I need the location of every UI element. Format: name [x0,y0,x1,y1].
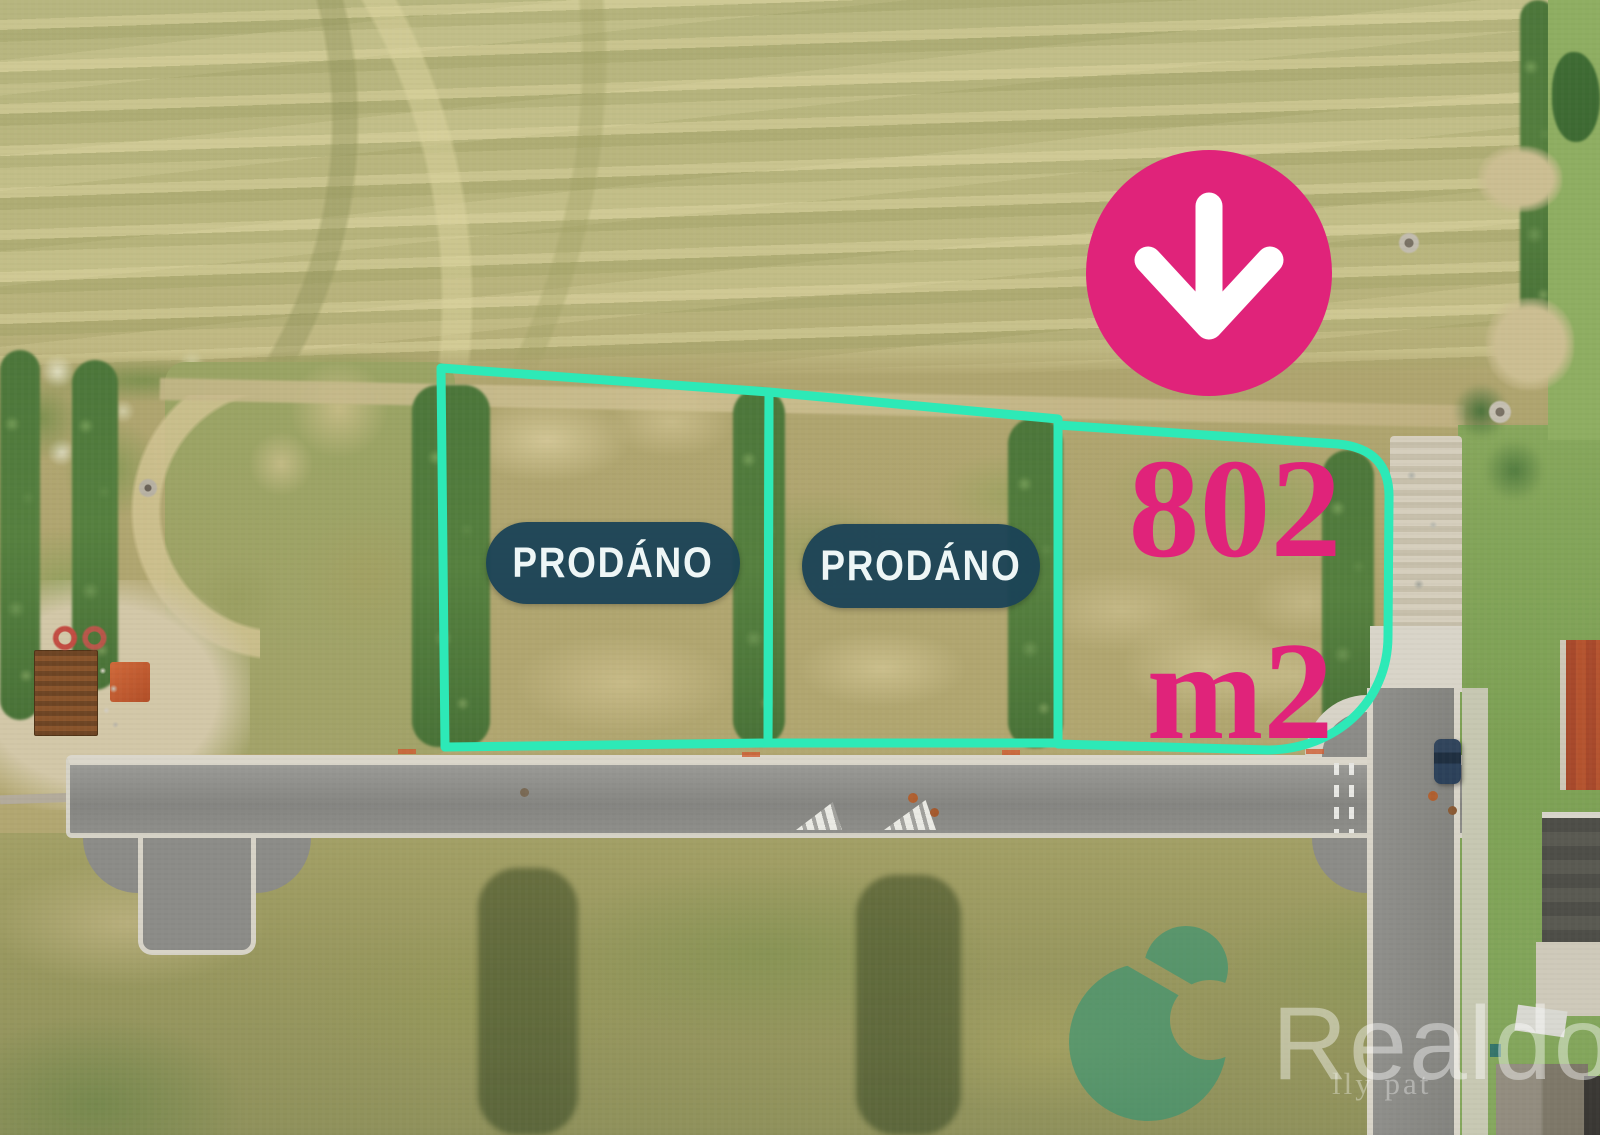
watermark-brand: Realdomus [1272,985,1600,1104]
watermark-tagline: lly pat [1332,1066,1431,1102]
sold-badge-plot-2: PRODÁNO [802,524,1040,608]
arrow-down-icon [1086,150,1332,396]
aerial-photo: PRODÁNO PRODÁNO 802 m2 Realdomus lly pat [0,0,1600,1135]
sold-badge-label: PRODÁNO [820,542,1021,591]
area-unit-label: m2 [1100,622,1380,762]
realdomus-leaf-logo [1068,920,1238,1135]
arrow-down-marker [1086,150,1332,396]
area-value-label: 802 [1095,437,1375,579]
sold-badge-plot-1: PRODÁNO [486,522,740,604]
sold-badge-label: PRODÁNO [512,539,713,588]
